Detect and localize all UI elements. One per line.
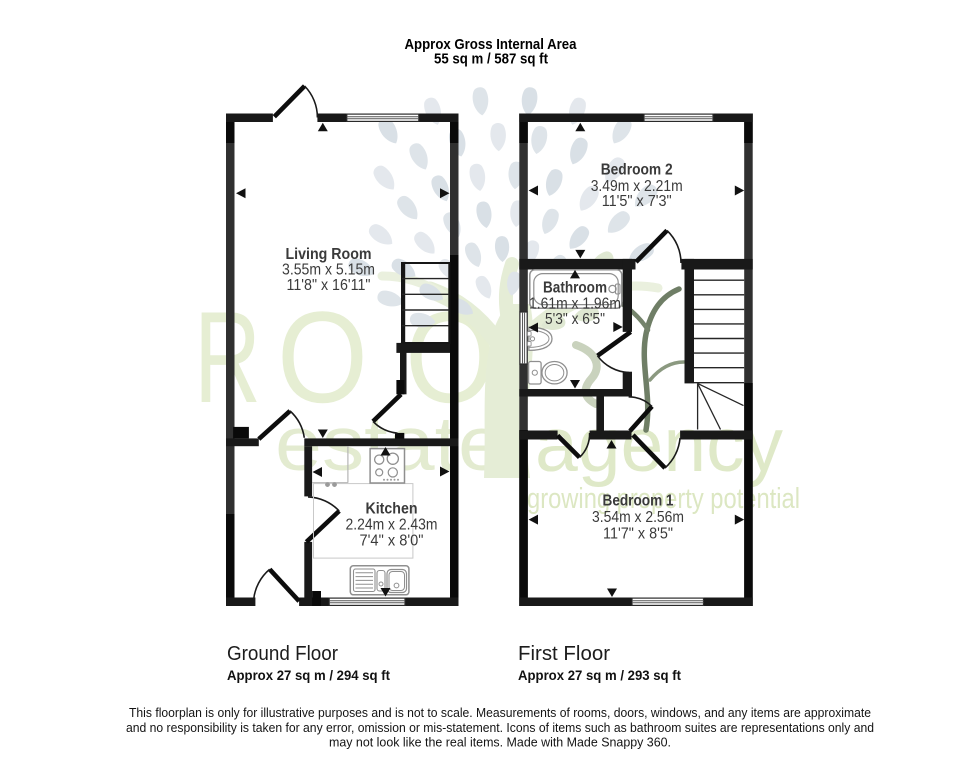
svg-text:may not look like the real ite: may not look like the real items. Made w… — [329, 734, 671, 749]
svg-text:5'3" x 6'5": 5'3" x 6'5" — [545, 311, 605, 328]
svg-text:11'5" x 7'3": 11'5" x 7'3" — [602, 193, 672, 210]
svg-text:55 sq m / 587 sq ft: 55 sq m / 587 sq ft — [434, 51, 548, 68]
svg-text:3.54m x 2.56m: 3.54m x 2.56m — [592, 509, 684, 526]
svg-text:This floorplan is only for ill: This floorplan is only for illustrative … — [129, 705, 871, 720]
svg-text:Ground Floor: Ground Floor — [227, 643, 338, 665]
svg-text:11'7" x 8'5": 11'7" x 8'5" — [603, 525, 673, 542]
svg-text:and no responsibility is taken: and no responsibility is taken for any e… — [126, 720, 874, 735]
svg-text:2.24m x 2.43m: 2.24m x 2.43m — [346, 517, 438, 534]
svg-text:7'4" x 8'0": 7'4" x 8'0" — [360, 533, 424, 550]
svg-text:First Floor: First Floor — [518, 643, 610, 665]
svg-text:Approx 27 sq m / 293 sq ft: Approx 27 sq m / 293 sq ft — [518, 668, 681, 683]
svg-text:Bedroom 1: Bedroom 1 — [603, 493, 674, 510]
svg-text:11'8" x 16'11": 11'8" x 16'11" — [287, 277, 371, 294]
svg-text:Bathroom: Bathroom — [543, 280, 607, 297]
svg-text:Living Room: Living Room — [286, 246, 372, 263]
svg-text:Kitchen: Kitchen — [366, 501, 418, 518]
svg-text:Bedroom 2: Bedroom 2 — [601, 162, 673, 179]
svg-text:Approx 27 sq m / 294 sq ft: Approx 27 sq m / 294 sq ft — [227, 668, 390, 683]
